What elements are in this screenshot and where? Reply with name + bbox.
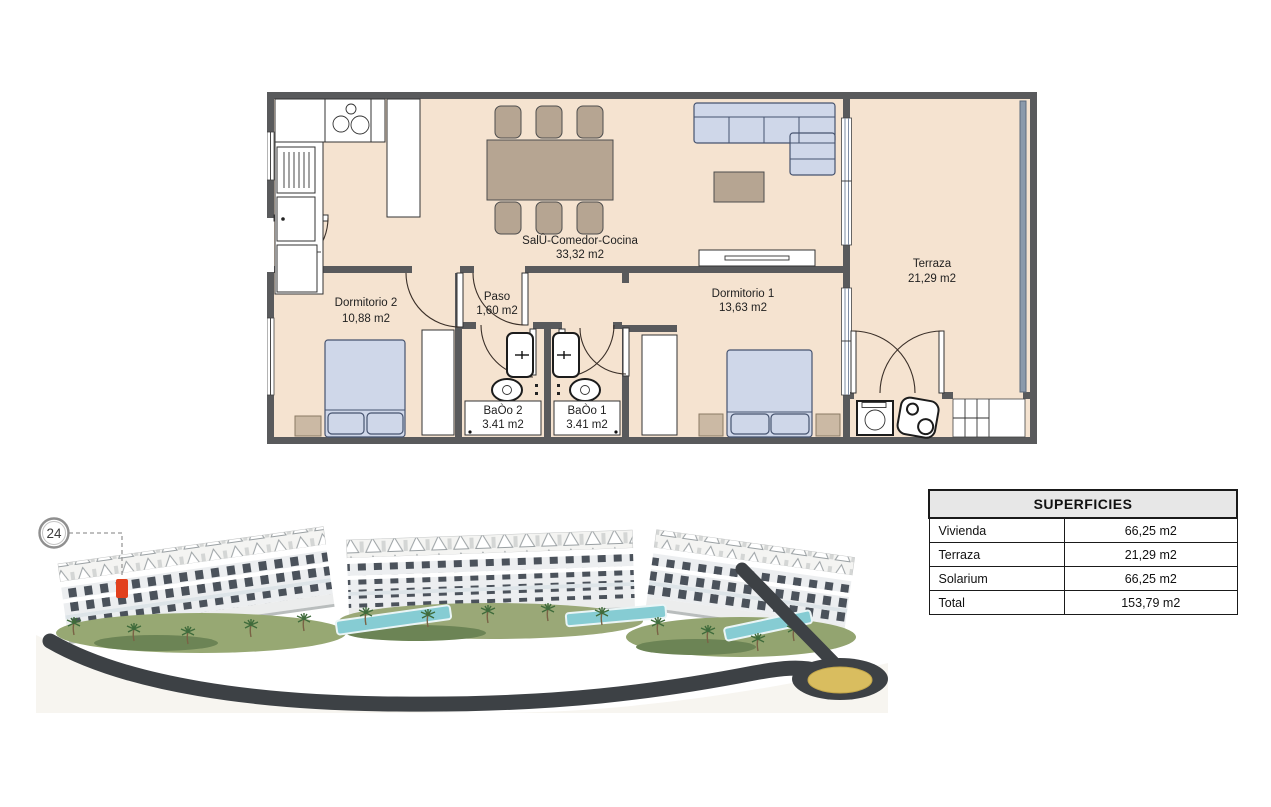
dining-table: [487, 106, 613, 234]
floor-plan: SalÛ-Comedor-Cocina 33,32 m2 Terraza 21,…: [267, 92, 1037, 444]
solarium-stairs: [953, 399, 1025, 437]
bench-bedroom2: [295, 416, 321, 436]
fridge-icon: [277, 147, 315, 193]
shower-bano1: [553, 333, 579, 377]
unit-marker-number: 24: [46, 526, 62, 541]
label-paso-area: 1,60 m2: [476, 305, 518, 317]
label-paso: Paso: [484, 291, 510, 303]
drain-dot: [468, 430, 471, 433]
table-row: Total 153,79 m2: [929, 591, 1237, 615]
label-salon: SalÛ-Comedor-Cocina: [522, 234, 638, 247]
label-bano1: BaÒo 1: [568, 404, 607, 417]
label-bano1-area: 3.41 m2: [566, 419, 608, 431]
row-value: 66,25 m2: [1065, 567, 1237, 591]
window-left-kitchen: [267, 132, 274, 180]
wardrobe-bedroom2: [422, 330, 454, 435]
terraza-railing: [1020, 101, 1026, 392]
bed-bedroom2: [325, 340, 405, 437]
hob-icon: [325, 99, 371, 142]
site-render: 24: [36, 513, 888, 713]
nightstand-right: [816, 414, 840, 436]
sliding-door-bedroom1: [842, 288, 852, 395]
washing-machine-icon: [857, 401, 893, 435]
kitchen-cabinet: [277, 245, 317, 292]
bed-bedroom1: [727, 350, 812, 437]
table-row: Solarium 66,25 m2: [929, 567, 1237, 591]
roundabout: [792, 658, 888, 700]
unit-marker: 24: [40, 519, 69, 548]
row-label: Vivienda: [929, 518, 1065, 543]
row-label: Total: [929, 591, 1065, 615]
label-terraza: Terraza: [913, 258, 952, 270]
superficies-title: SUPERFICIES: [929, 490, 1237, 518]
plan-sheet: SalÛ-Comedor-Cocina 33,32 m2 Terraza 21,…: [0, 0, 1271, 807]
coffee-table: [714, 172, 764, 202]
window-left-bedroom2: [267, 318, 274, 395]
superficies-table: SUPERFICIES Vivienda 66,25 m2 Terraza 21…: [928, 489, 1238, 615]
tv-unit: [699, 250, 815, 266]
shower-bano2: [507, 333, 533, 377]
oven-icon: [277, 197, 315, 241]
unit-highlight: [116, 579, 128, 598]
sliding-door-living: [842, 118, 852, 245]
drain-dot: [614, 430, 617, 433]
label-dormitorio2: Dormitorio 2: [335, 297, 398, 309]
wardrobe-bedroom1: [642, 335, 677, 435]
row-label: Solarium: [929, 567, 1065, 591]
row-label: Terraza: [929, 543, 1065, 567]
table-row: Terraza 21,29 m2: [929, 543, 1237, 567]
label-bano2-area: 3.41 m2: [482, 419, 524, 431]
row-value: 66,25 m2: [1065, 518, 1237, 543]
table-row: Vivienda 66,25 m2: [929, 518, 1237, 543]
label-bano2: BaÒo 2: [484, 404, 523, 417]
label-terraza-area: 21,29 m2: [908, 273, 956, 285]
label-dormitorio1-area: 13,63 m2: [719, 302, 767, 314]
label-dormitorio2-area: 10,88 m2: [342, 313, 390, 325]
laundry-sink-icon: [896, 396, 940, 439]
label-dormitorio1: Dormitorio 1: [712, 288, 775, 300]
row-value: 153,79 m2: [1065, 591, 1237, 615]
label-salon-area: 33,32 m2: [556, 249, 604, 261]
row-value: 21,29 m2: [1065, 543, 1237, 567]
nightstand-left: [699, 414, 723, 436]
